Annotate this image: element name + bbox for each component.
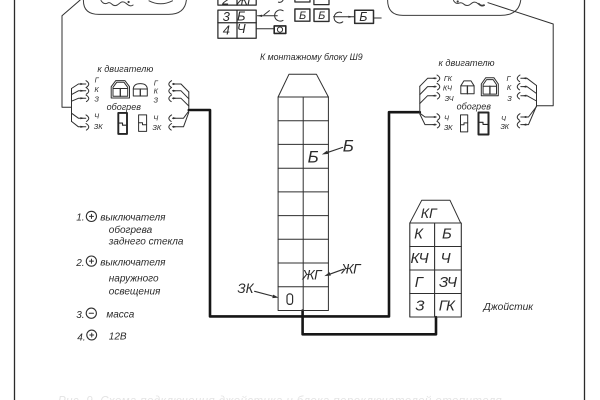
svg-text:масса: масса — [106, 309, 134, 320]
svg-text:З: З — [154, 95, 159, 104]
svg-text:4: 4 — [223, 22, 230, 37]
svg-text:З: З — [415, 298, 424, 315]
svg-text:З: З — [94, 95, 99, 104]
svg-text:ГК: ГК — [444, 74, 453, 83]
svg-text:ЗК: ЗК — [237, 281, 254, 296]
svg-text:ЖГ: ЖГ — [301, 267, 323, 282]
svg-text:к двигателю: к двигателю — [439, 58, 495, 68]
svg-text:Г: Г — [506, 74, 511, 83]
svg-text:К: К — [507, 83, 512, 92]
svg-text:1.: 1. — [76, 213, 84, 224]
svg-text:выключателя: выключателя — [100, 213, 166, 224]
svg-text:обогрева: обогрева — [109, 224, 153, 236]
svg-text:ЗК: ЗК — [500, 122, 509, 131]
svg-text:к двигателю: к двигателю — [97, 64, 153, 74]
svg-text:4.: 4. — [77, 332, 85, 343]
svg-text:2: 2 — [221, 0, 230, 7]
svg-text:3.: 3. — [76, 310, 84, 321]
svg-text:заднего стекла: заднего стекла — [108, 236, 184, 247]
svg-text:освещения: освещения — [109, 287, 161, 298]
svg-text:З: З — [507, 94, 512, 103]
svg-text:Г: Г — [95, 76, 100, 85]
svg-text:Б: Б — [318, 10, 325, 22]
svg-text:ЖГ: ЖГ — [236, 0, 256, 7]
svg-text:Б: Б — [299, 10, 306, 22]
svg-text:обогрев: обогрев — [107, 102, 142, 112]
svg-text:обогрев: обогрев — [457, 101, 492, 111]
svg-text:ЗЧ: ЗЧ — [445, 94, 454, 103]
svg-text:Ч: Ч — [94, 112, 99, 121]
svg-text:К: К — [414, 225, 424, 242]
svg-text:КЧ: КЧ — [411, 250, 430, 267]
svg-text:12В: 12В — [109, 331, 127, 342]
svg-text:Ч: Ч — [441, 250, 452, 267]
svg-text:Б: Б — [308, 148, 319, 167]
svg-text:ЗК: ЗК — [94, 122, 104, 131]
svg-text:ЗК: ЗК — [152, 123, 162, 132]
svg-text:выключателя: выключателя — [100, 258, 166, 269]
svg-text:К: К — [94, 85, 99, 94]
svg-text:Ч: Ч — [444, 114, 449, 123]
svg-text:2.: 2. — [75, 258, 84, 269]
svg-text:ЗК: ЗК — [444, 123, 453, 132]
svg-text:ЗЧ: ЗЧ — [439, 274, 458, 291]
svg-text:Б: Б — [343, 137, 354, 156]
svg-text:Г: Г — [415, 274, 425, 291]
svg-text:Ч: Ч — [153, 113, 158, 122]
svg-text:Б: Б — [359, 10, 367, 24]
svg-text:Рис. 9. Схема подключения джой: Рис. 9. Схема подключения джойстика и бл… — [58, 396, 502, 400]
svg-text:Ч: Ч — [237, 21, 246, 36]
svg-text:Б: Б — [442, 225, 452, 242]
svg-text:Джойстик: Джойстик — [483, 302, 535, 313]
svg-text:наружного: наружного — [109, 274, 159, 285]
svg-text:КЧ: КЧ — [443, 83, 452, 92]
svg-text:КГ: КГ — [421, 205, 438, 221]
svg-text:К монтажному блоку Ш9: К монтажному блоку Ш9 — [260, 52, 363, 62]
svg-text:ГК: ГК — [439, 298, 456, 315]
svg-text:К: К — [154, 87, 159, 96]
